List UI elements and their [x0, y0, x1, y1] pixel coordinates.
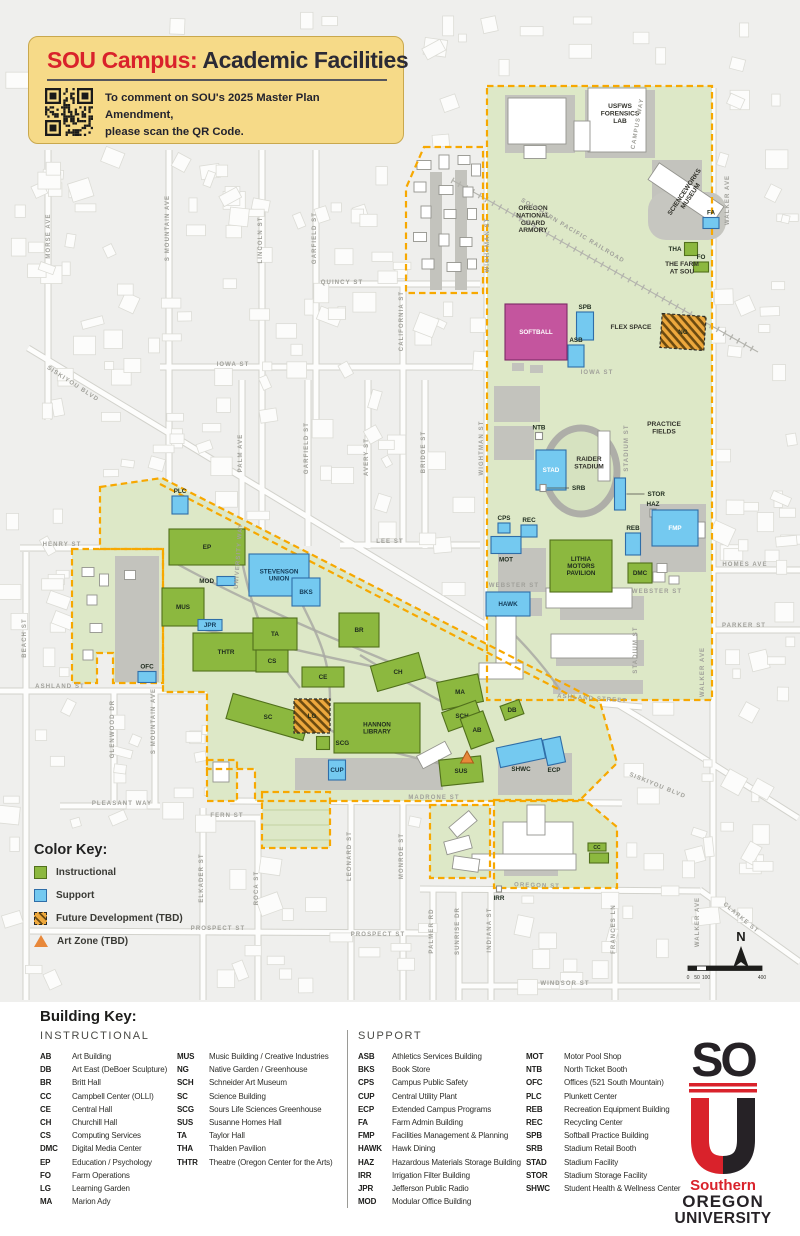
street-label: LINCOLN ST	[258, 217, 264, 264]
key-entry-ECP: ECPExtended Campus Programs	[358, 1103, 526, 1116]
building-label-MA: MA	[455, 689, 465, 696]
key-entry-REC: RECRecycling Center	[526, 1116, 670, 1129]
building-key-title: Building Key:	[40, 1008, 670, 1025]
building-FMP: FMP	[652, 510, 698, 546]
key-name: Theatre (Oregon Center for the Arts)	[209, 1158, 333, 1167]
art-zone-swatch	[34, 935, 48, 947]
key-code: SRB	[526, 1142, 564, 1155]
key-name: Taylor Hall	[209, 1131, 245, 1140]
building-CC: CC	[588, 843, 606, 851]
key-code: MUS	[177, 1050, 209, 1063]
key-name: Stadium Storage Facility	[564, 1171, 647, 1180]
building-label-OFC: OFC	[140, 664, 154, 671]
building-label-SCG: SCG	[336, 740, 350, 747]
key-entry-MUS: MUSMusic Building / Creative Industries	[177, 1050, 347, 1063]
page-title-rest: Academic Facilities	[197, 47, 408, 73]
building-CUP: CUP	[329, 760, 346, 780]
key-code: JPR	[358, 1182, 392, 1195]
street-label: WEBSTER ST	[489, 583, 539, 589]
key-entry-ASB: ASBAthletics Services Building	[358, 1050, 526, 1063]
key-code: HAWK	[358, 1142, 392, 1155]
key-entry-SCH: SCHSchneider Art Museum	[177, 1076, 347, 1089]
key-entry-HAZ: HAZHazardous Materials Storage Building	[358, 1156, 526, 1169]
building-label-AB: AB	[472, 727, 482, 734]
building-BKS: BKS	[292, 578, 320, 606]
key-code: CS	[40, 1129, 72, 1142]
instructional-swatch	[34, 866, 47, 879]
logo-university: UNIVERSITY	[674, 1210, 771, 1227]
building-JPR: JPR	[198, 620, 222, 631]
building-label-SRB: SRB	[572, 485, 586, 492]
key-entry-MA: MAMarion Ady	[40, 1195, 177, 1208]
street-label: HENRY ST	[43, 542, 82, 548]
street-label: WIGHTMAN ST	[485, 217, 491, 272]
street-label: QUINCY ST	[321, 280, 363, 286]
future-development-label: Future Development (TBD)	[56, 913, 183, 924]
key-code: STAD	[526, 1156, 564, 1169]
color-key-item-artzone: Art Zone (TBD)	[34, 935, 183, 947]
building-label-CE: CE	[319, 674, 328, 681]
key-code: ASB	[358, 1050, 392, 1063]
building-key: Building Key: INSTRUCTIONAL ABArt Buildi…	[40, 1008, 670, 1208]
building-key-instructional: INSTRUCTIONAL ABArt BuildingDBArt East (…	[40, 1030, 347, 1208]
building-unlabeled	[590, 853, 609, 863]
key-entry-MOT: MOTMotor Pool Shop	[526, 1050, 670, 1063]
key-code: CC	[40, 1090, 72, 1103]
key-entry-STOR: STORStadium Storage Facility	[526, 1169, 670, 1182]
building-label-REB: REB	[626, 525, 640, 532]
street-label: BEACH ST	[22, 618, 28, 657]
building-label-SPB: SPB	[579, 304, 592, 311]
key-name: Art East (DeBoer Sculpture)	[72, 1065, 167, 1074]
art-zone-label: Art Zone (TBD)	[57, 936, 128, 947]
key-entry-IRR: IRRIrrigation Filter Building	[358, 1169, 526, 1182]
building-label-TA: TA	[271, 631, 279, 638]
key-entry-NG: NGNative Garden / Greenhouse	[177, 1063, 347, 1076]
key-code: HAZ	[358, 1156, 392, 1169]
key-entry-DB: DBArt East (DeBoer Sculpture)	[40, 1063, 177, 1076]
street-label: WEBSTER ST	[632, 589, 682, 595]
building-key-support: SUPPORT ASBAthletics Services BuildingBK…	[358, 1030, 670, 1208]
street-label: LEONARD ST	[347, 831, 353, 881]
street-label: GLENWOOD DR	[110, 700, 116, 758]
key-entry-CC: CCCampbell Center (OLLI)	[40, 1090, 177, 1103]
building-label-FO: FO	[697, 254, 706, 261]
key-code: SHWC	[526, 1182, 564, 1195]
key-code: SPB	[526, 1129, 564, 1142]
building-label-SC: SC	[264, 714, 273, 721]
building-label-PLC: PLC	[174, 488, 187, 495]
building-label-SUS: SUS	[455, 768, 468, 775]
qr-instructions-line1: To comment on SOU's 2025 Master Plan Ame…	[105, 92, 320, 121]
building-BR: BR	[339, 613, 379, 647]
street-label: STADIUM ST	[624, 424, 630, 471]
key-entry-BKS: BKSBook Store	[358, 1063, 526, 1076]
building-CE: CE	[302, 667, 344, 687]
street-label: WALKER AVE	[700, 647, 706, 697]
key-name: Hazardous Materials Storage Building	[392, 1158, 521, 1167]
street-label: IOWA ST	[581, 370, 614, 376]
key-code: DB	[40, 1063, 72, 1076]
key-name: Irrigation Filter Building	[392, 1171, 470, 1180]
key-code: THA	[177, 1142, 209, 1155]
title-divider	[47, 79, 387, 81]
logo-u-left	[700, 1098, 723, 1165]
key-code: TA	[177, 1129, 209, 1142]
street-label: IOWA ST	[217, 362, 250, 368]
key-code: NG	[177, 1063, 209, 1076]
support-swatch	[34, 889, 47, 902]
building-CS: CS	[256, 650, 288, 672]
key-name: Computing Services	[72, 1131, 141, 1140]
key-entry-EP: EPEducation / Psychology	[40, 1156, 177, 1169]
street-label: CALIFORNIA ST	[399, 291, 405, 351]
key-name: Science Building	[209, 1092, 266, 1101]
building-label-DB: DB	[507, 707, 517, 714]
street-label: PALMER RD	[429, 908, 435, 953]
page-title-brand: SOU Campus:	[47, 47, 197, 73]
key-entry-SC: SCScience Building	[177, 1090, 347, 1103]
key-name: Jefferson Public Radio	[392, 1184, 469, 1193]
future-development-swatch	[34, 912, 47, 925]
key-name: Thalden Pavilion	[209, 1144, 266, 1153]
key-code: CH	[40, 1116, 72, 1129]
key-name: Education / Psychology	[72, 1158, 152, 1167]
key-entry-FA: FAFarm Admin Building	[358, 1116, 526, 1129]
key-code: DMC	[40, 1142, 72, 1155]
street-label: SUNRISE DR	[455, 907, 461, 955]
key-code: BR	[40, 1076, 72, 1089]
building-SPB: SPB	[577, 304, 594, 340]
street-label: PROSPECT ST	[191, 926, 245, 932]
street-label: LEE ST	[376, 539, 404, 545]
building-THTR: THTR	[193, 633, 259, 671]
key-name: Art Building	[72, 1052, 111, 1061]
street-label: GARFIELD ST	[304, 422, 310, 474]
street-label: MORSE AVE	[46, 213, 52, 258]
key-name: Digital Media Center	[72, 1144, 141, 1153]
key-code: OFC	[526, 1076, 564, 1089]
street-label: S MOUNTAIN AVE	[151, 688, 157, 754]
street-label: ELKADER ST	[199, 853, 205, 902]
key-name: North Ticket Booth	[564, 1065, 627, 1074]
qr-instructions: To comment on SOU's 2025 Master Plan Ame…	[105, 88, 389, 141]
building-label-REC: REC	[522, 517, 536, 524]
street-label: FERN ST	[210, 813, 243, 819]
building-label-MUS: MUS	[176, 604, 190, 611]
color-key-item-future: Future Development (TBD)	[34, 912, 183, 925]
key-name: Offices (521 South Mountain)	[564, 1078, 664, 1087]
title-card: SOU Campus: Academic Facilities To comme…	[28, 36, 404, 144]
street-label: S MOUNTAIN AVE	[165, 195, 171, 261]
building-REB: REB	[626, 525, 641, 555]
key-name: Central Hall	[72, 1105, 112, 1114]
key-entry-JPR: JPRJefferson Public Radio	[358, 1182, 526, 1195]
building-label-THA: THA	[669, 246, 682, 253]
building-label-NTB: NTB	[533, 425, 546, 432]
key-name: Athletics Services Building	[392, 1052, 482, 1061]
key-code: MOD	[358, 1195, 392, 1208]
street-label: PARKER ST	[722, 623, 766, 629]
street-label: ASHLAND ST	[35, 684, 85, 690]
building-label-DMC: DMC	[633, 570, 648, 577]
key-code: REB	[526, 1103, 564, 1116]
street-label: BRIDGE ST	[421, 431, 427, 474]
key-name: Plunkett Center	[564, 1092, 617, 1101]
key-code: SC	[177, 1090, 209, 1103]
building-PLC: PLC	[172, 488, 188, 514]
building-OFC: OFC	[138, 664, 156, 683]
street-label: GARFIELD ST	[312, 212, 318, 264]
key-name: Learning Garden	[72, 1184, 130, 1193]
street-label: WALKER AVE	[695, 897, 701, 947]
building-label-CUP: CUP	[330, 767, 343, 774]
building-label-ECP: ECP	[548, 767, 561, 774]
key-code: CUP	[358, 1090, 392, 1103]
key-entry-MOD: MODModular Office Building	[358, 1195, 526, 1208]
key-name: Extended Campus Programs	[392, 1105, 491, 1114]
key-code: FMP	[358, 1129, 392, 1142]
key-entry-NTB: NTBNorth Ticket Booth	[526, 1063, 670, 1076]
key-entry-TA: TATaylor Hall	[177, 1129, 347, 1142]
key-entry-LG: LGLearning Garden	[40, 1182, 177, 1195]
key-code: PLC	[526, 1090, 564, 1103]
key-code: REC	[526, 1116, 564, 1129]
key-name: Farm Admin Building	[392, 1118, 463, 1127]
key-entry-SCG: SCGSours Life Sciences Greenhouse	[177, 1103, 347, 1116]
key-name: Susanne Homes Hall	[209, 1118, 281, 1127]
color-key-title: Color Key:	[34, 842, 183, 858]
key-name: Britt Hall	[72, 1078, 101, 1087]
key-entry-SPB: SPBSoftball Practice Building	[526, 1129, 670, 1142]
logo-u-right	[723, 1098, 746, 1165]
street-label: AVERY ST	[364, 438, 370, 476]
building-label-NG: NG	[678, 329, 688, 336]
building-label-CS: CS	[268, 658, 277, 665]
street-label: INDIANA ST	[487, 907, 493, 952]
key-entry-PLC: PLCPlunkett Center	[526, 1090, 670, 1103]
building-label-ASB: ASB	[569, 337, 583, 344]
key-name: Native Garden / Greenhouse	[209, 1065, 307, 1074]
key-entry-FO: FOFarm Operations	[40, 1169, 177, 1182]
street-label: FRANCES LN	[611, 904, 617, 954]
street-label: WINDSOR ST	[540, 981, 589, 987]
building-ASB: ASB	[568, 337, 584, 367]
key-name: Stadium Facility	[564, 1158, 618, 1167]
key-code: STOR	[526, 1169, 564, 1182]
logo-oregon: OREGON	[682, 1192, 764, 1211]
building-label-CC: CC	[593, 845, 601, 851]
key-name: Sours Life Sciences Greenhouse	[209, 1105, 321, 1114]
building-label-LG: LG	[308, 713, 317, 720]
key-code: MOT	[526, 1050, 564, 1063]
street-label: PLEASANT WAY	[92, 801, 152, 807]
scale-tick: 100	[702, 975, 711, 981]
key-code: BKS	[358, 1063, 392, 1076]
building-label-BR: BR	[354, 627, 364, 634]
page-title: SOU Campus: Academic Facilities	[47, 47, 387, 74]
building-label-HAZ: HAZ	[647, 501, 660, 508]
building-label-BKS: BKS	[299, 589, 312, 596]
key-entry-DMC: DMCDigital Media Center	[40, 1142, 177, 1155]
street-label: MONROE ST	[399, 833, 405, 879]
color-key-item-instructional: Instructional	[34, 866, 183, 879]
key-name: Churchill Hall	[72, 1118, 117, 1127]
key-code: CPS	[358, 1076, 392, 1089]
building-SUS: SUS	[439, 756, 483, 786]
building-label-MOT: MOT	[499, 557, 513, 564]
key-name: Softball Practice Building	[564, 1131, 649, 1140]
key-entry-FMP: FMPFacilities Management & Planning	[358, 1129, 526, 1142]
key-code: CE	[40, 1103, 72, 1116]
key-entry-AB: ABArt Building	[40, 1050, 177, 1063]
key-entry-REB: REBRecreation Equipment Building	[526, 1103, 670, 1116]
building-label-CPS: CPS	[498, 515, 511, 522]
instructional-label: Instructional	[56, 867, 116, 878]
building-label-SOFTBALL: SOFTBALL	[519, 329, 553, 336]
building-label-MOD: MOD	[199, 578, 214, 585]
building-label-STOR: STOR	[648, 491, 666, 498]
qr-code	[45, 88, 93, 136]
logo-so: SO	[691, 1034, 756, 1087]
street-label: HOMES AVE	[722, 562, 767, 568]
key-entry-SRB: SRBStadium Retail Booth	[526, 1142, 670, 1155]
key-code: ECP	[358, 1103, 392, 1116]
key-name: Farm Operations	[72, 1171, 130, 1180]
key-entry-CUP: CUPCentral Utility Plant	[358, 1090, 526, 1103]
building-label-THTR: THTR	[218, 649, 235, 656]
key-code: EP	[40, 1156, 72, 1169]
facility-label: RAIDERSTADIUM	[574, 456, 604, 470]
facility-label: FLEX SPACE	[611, 324, 653, 331]
key-entry-CE: CECentral Hall	[40, 1103, 177, 1116]
color-key: Color Key: Instructional Support Future …	[34, 842, 183, 957]
building-NG: NG	[660, 314, 706, 351]
key-entry-STAD: STADStadium Facility	[526, 1156, 670, 1169]
key-entry-SUS: SUSSusanne Homes Hall	[177, 1116, 347, 1129]
key-name: Campus Public Safety	[392, 1078, 468, 1087]
building-HAWK: HAWK	[486, 592, 530, 616]
scale-tick: 0	[687, 975, 690, 981]
street-label: PALM AVE	[238, 434, 244, 473]
key-code: SUS	[177, 1116, 209, 1129]
key-name: Recycling Center	[564, 1118, 623, 1127]
building-REC: REC	[521, 517, 537, 537]
key-name: Stadium Retail Booth	[564, 1144, 636, 1153]
key-entry-HAWK: HAWKHawk Dining	[358, 1142, 526, 1155]
building-label-FA: FA	[707, 210, 715, 217]
street-label: ROCA ST	[254, 871, 260, 905]
scale-tick: 400	[758, 975, 767, 981]
building-MOD: MOD	[199, 577, 235, 586]
street-label: STADIUM ST	[633, 626, 639, 673]
key-entry-OFC: OFCOffices (521 South Mountain)	[526, 1076, 670, 1089]
key-name: Music Building / Creative Industries	[209, 1052, 329, 1061]
building-label-HAWK: HAWK	[498, 601, 518, 608]
key-name: Central Utility Plant	[392, 1092, 457, 1101]
key-code: SCH	[177, 1076, 209, 1089]
key-name: Campbell Center (OLLI)	[72, 1092, 154, 1101]
building-DMC: DMC	[628, 563, 652, 583]
key-code: AB	[40, 1050, 72, 1063]
building-CPS: CPS	[498, 515, 511, 533]
building-label-IRR: IRR	[494, 895, 505, 902]
sou-logo: SOSouthernOREGONUNIVERSITY	[660, 1032, 786, 1228]
key-entry-THA: THAThalden Pavilion	[177, 1142, 347, 1155]
scale-tick: 50	[694, 975, 700, 981]
key-entry-THTR: THTRTheatre (Oregon Center for the Arts)	[177, 1156, 347, 1169]
building-label-HANNON: HANNONLIBRARY	[363, 721, 392, 735]
key-code: IRR	[358, 1169, 392, 1182]
compass-n-label: N	[736, 929, 745, 944]
building-label-SHWC: SHWC	[511, 766, 531, 773]
key-entry-BR: BRBritt Hall	[40, 1076, 177, 1089]
key-name: Facilities Management & Planning	[392, 1131, 508, 1140]
street-label: WALKER AVE	[725, 175, 731, 225]
key-name: Modular Office Building	[392, 1197, 471, 1206]
support-section-title: SUPPORT	[358, 1030, 670, 1042]
instructional-section-title: INSTRUCTIONAL	[40, 1030, 347, 1042]
key-code: NTB	[526, 1063, 564, 1076]
building-label-STAD: STAD	[543, 467, 560, 474]
street-label: WIGHTMAN ST	[479, 420, 485, 475]
key-code: SCG	[177, 1103, 209, 1116]
building-LG: LG	[294, 699, 330, 733]
support-label: Support	[56, 890, 94, 901]
key-code: FA	[358, 1116, 392, 1129]
key-code: LG	[40, 1182, 72, 1195]
key-name: Motor Pool Shop	[564, 1052, 621, 1061]
building-label-CH: CH	[393, 669, 403, 676]
key-name: Marion Ady	[72, 1197, 111, 1206]
building-SOFTBALL: SOFTBALL	[505, 304, 567, 360]
building-label-FMP: FMP	[668, 525, 681, 532]
building-EP: EP	[169, 529, 245, 565]
key-divider	[347, 1030, 348, 1208]
building-TA: TA	[253, 618, 297, 650]
key-name: Book Store	[392, 1065, 430, 1074]
key-entry-CH: CHChurchill Hall	[40, 1116, 177, 1129]
street-label: MADRONE ST	[408, 795, 459, 801]
key-name: Schneider Art Museum	[209, 1078, 287, 1087]
building-LITHIA-MOTORS-PAVILION: LITHIAMOTORSPAVILION	[550, 540, 612, 592]
key-code: THTR	[177, 1156, 209, 1169]
key-name: Hawk Dining	[392, 1144, 435, 1153]
key-code: MA	[40, 1195, 72, 1208]
color-key-item-support: Support	[34, 889, 183, 902]
key-entry-CS: CSComputing Services	[40, 1129, 177, 1142]
key-entry-CPS: CPSCampus Public Safety	[358, 1076, 526, 1089]
qr-instructions-line2: please scan the QR Code.	[105, 126, 244, 138]
building-label-EP: EP	[203, 544, 211, 551]
key-code: FO	[40, 1169, 72, 1182]
key-name: Recreation Equipment Building	[564, 1105, 670, 1114]
street-label: PROSPECT ST	[351, 932, 405, 938]
building-label-JPR: JPR	[204, 622, 217, 629]
key-entry-SHWC: SHWCStudent Health & Wellness Center	[526, 1182, 670, 1195]
